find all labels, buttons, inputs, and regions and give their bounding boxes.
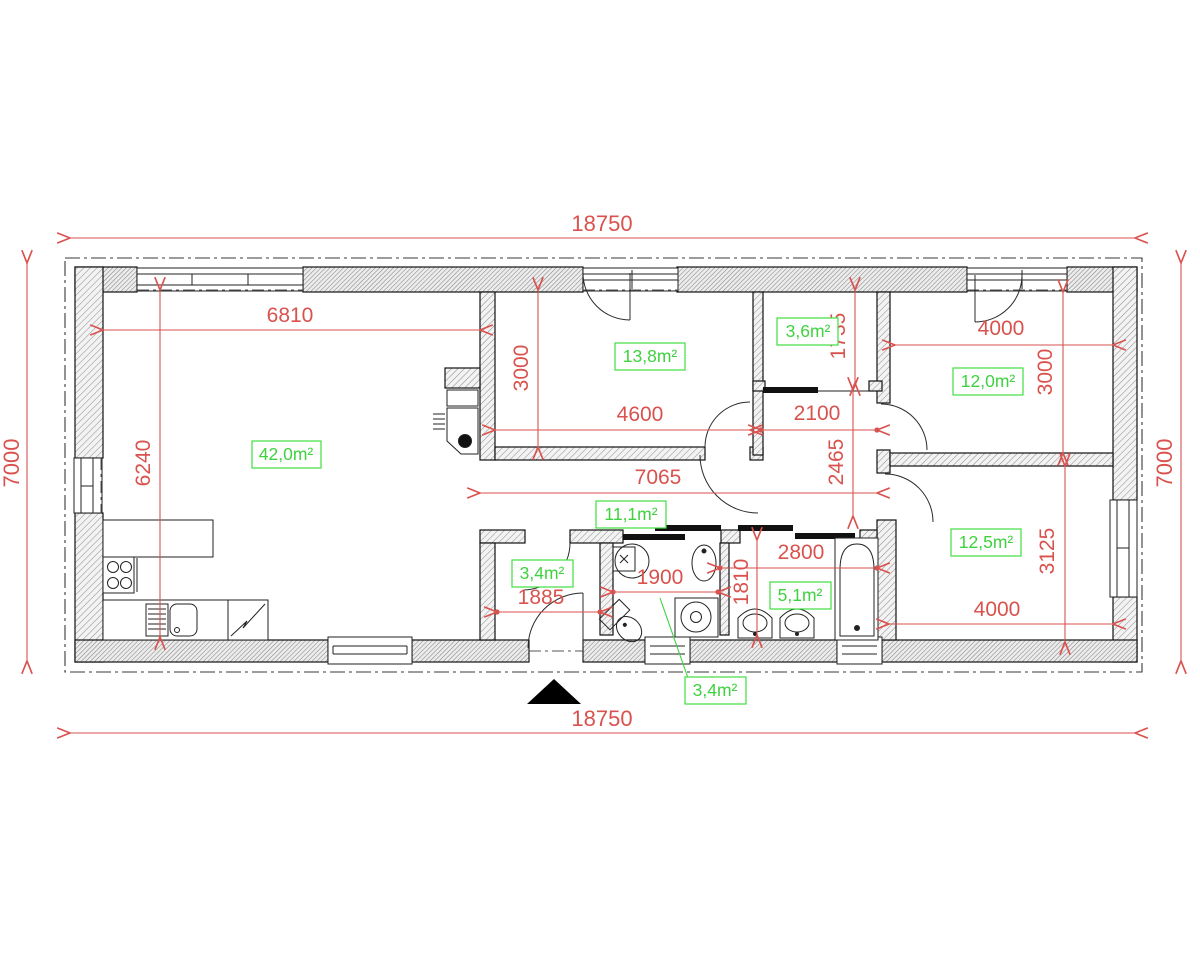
dim-entry-width: 1885	[518, 586, 565, 609]
floor-plan-page: 18750 18750 7000 7000 6810 6240 3000 460…	[0, 0, 1200, 960]
svg-text:13,8m²: 13,8m²	[623, 346, 678, 366]
dim-bath-depth: 1810	[730, 559, 753, 606]
dim-bedroom-right-top-height: 3000	[1034, 349, 1057, 396]
area-label-bath: 5,1m²	[770, 582, 831, 609]
svg-text:12,0m²: 12,0m²	[961, 371, 1016, 391]
window-bedroom-right-top-icon	[967, 268, 1067, 291]
dim-corridor-width: 2100	[794, 402, 841, 425]
bathtub-icon	[835, 538, 878, 640]
area-label-bedroom-right-bottom: 12,5m²	[951, 529, 1021, 556]
paper-background	[0, 0, 1200, 960]
dim-bedroom-right-bottom-height: 3125	[1036, 528, 1059, 575]
dim-bedroom-right-top-width: 4000	[978, 317, 1025, 340]
stove-icon	[103, 557, 137, 593]
dim-bedroom-right-bottom-width: 4000	[974, 598, 1021, 621]
svg-text:12,5m²: 12,5m²	[959, 532, 1014, 552]
svg-text:5,1m²: 5,1m²	[778, 585, 823, 605]
area-label-bedroom-top: 13,8m²	[615, 343, 685, 370]
dim-living-width: 6810	[267, 304, 314, 327]
window-wc-bottom-icon	[645, 637, 690, 664]
svg-text:3,6m²: 3,6m²	[786, 321, 831, 341]
window-bedroom-right-bottom-icon	[1110, 500, 1137, 597]
svg-text:11,1m²: 11,1m²	[604, 504, 657, 524]
dim-overall-right: 7000	[1152, 439, 1177, 488]
dim-hall-length: 7065	[635, 466, 682, 489]
area-label-living: 42,0m²	[252, 441, 321, 468]
window-living-left-icon	[74, 458, 102, 513]
dim-overall-top: 18750	[571, 211, 632, 236]
area-label-closet: 3,6m²	[777, 318, 838, 345]
dim-wc-width: 1900	[637, 566, 684, 589]
svg-text:3,4m²: 3,4m²	[520, 563, 565, 583]
dim-overall-left: 7000	[0, 439, 24, 488]
window-living-top-icon	[137, 268, 303, 291]
area-label-wc: 3,4m²	[685, 677, 746, 704]
svg-text:42,0m²: 42,0m²	[259, 444, 314, 464]
area-label-entry: 3,4m²	[512, 560, 573, 587]
svg-text:3,4m²: 3,4m²	[693, 680, 738, 700]
window-living-bottom-icon	[328, 637, 412, 664]
area-label-bedroom-right-top: 12,0m²	[953, 368, 1023, 395]
dim-overall-bottom: 18750	[571, 706, 632, 731]
area-label-hall: 11,1m²	[596, 501, 666, 528]
dim-bath-width: 2800	[778, 541, 825, 564]
window-bath-bottom-icon	[837, 637, 882, 664]
dim-living-height: 6240	[132, 440, 155, 487]
dim-hall-depth: 2465	[825, 439, 848, 486]
dim-bedroom-top-height: 3000	[510, 345, 533, 392]
floor-plan-canvas: 18750 18750 7000 7000 6810 6240 3000 460…	[0, 0, 1200, 960]
dim-bedroom-top-width: 4600	[617, 403, 664, 426]
